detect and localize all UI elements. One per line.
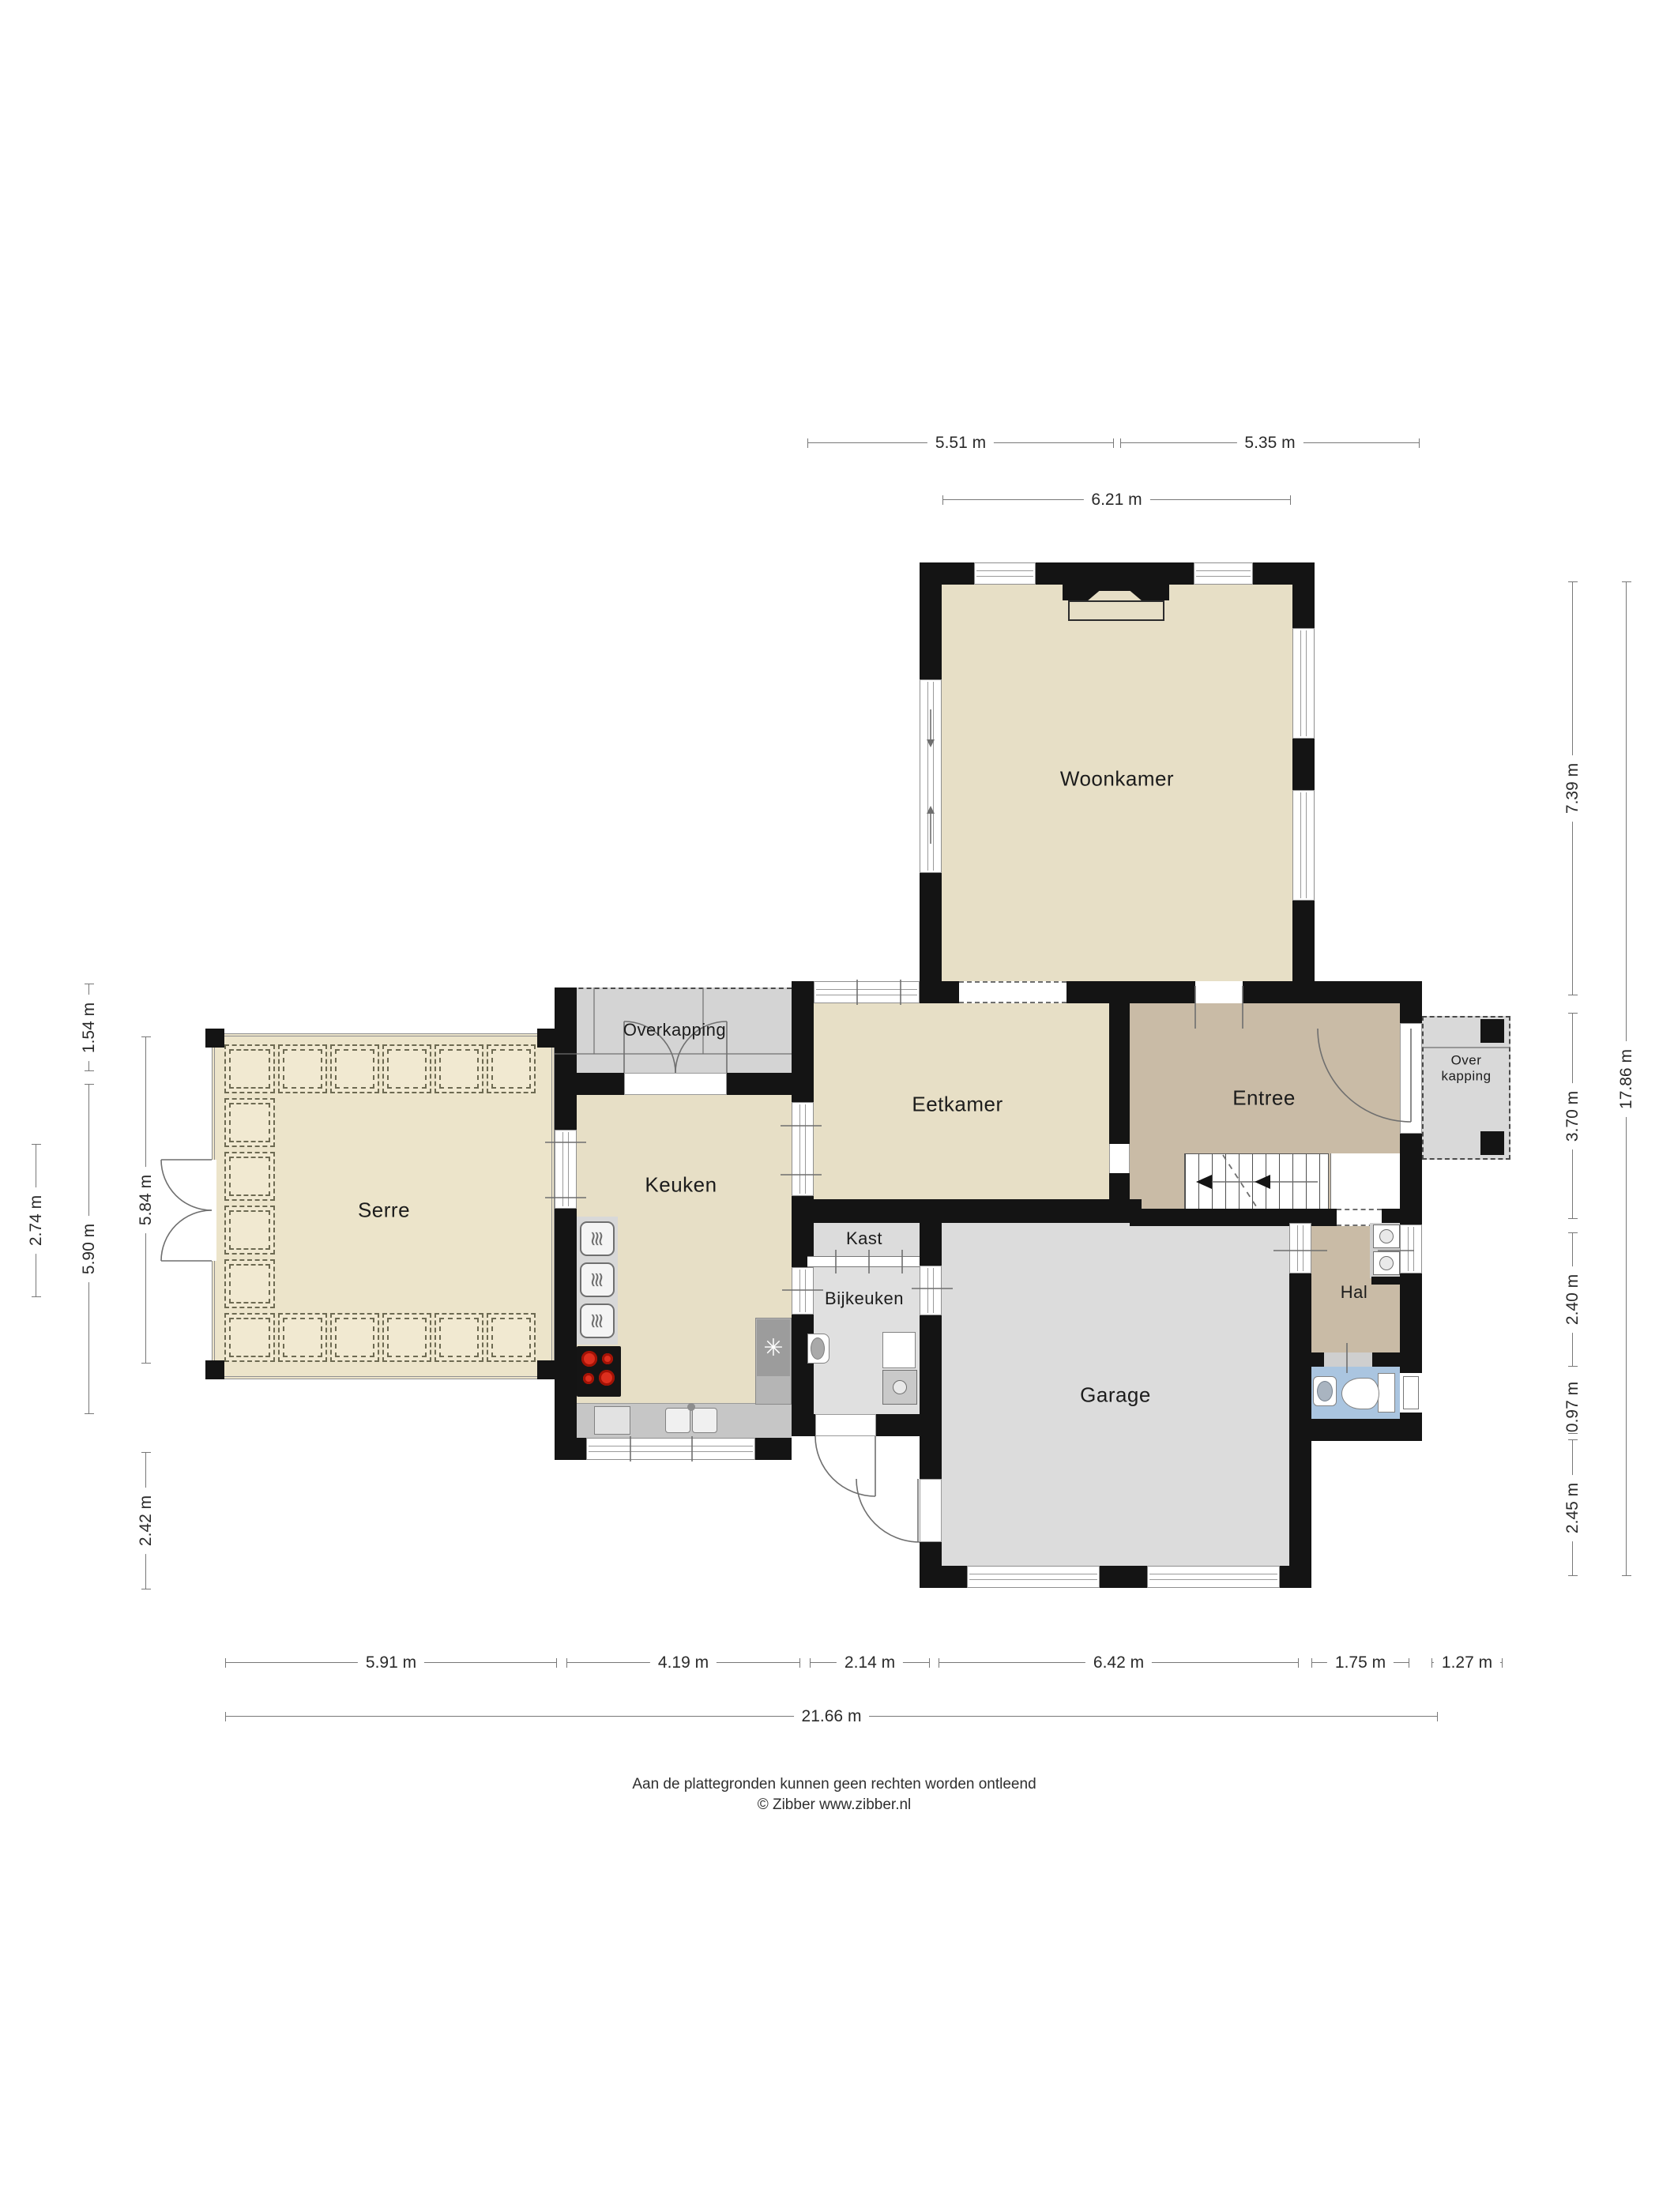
serre-door-arc [161,1160,212,1210]
dimension-left-4: 5.84 m [145,1036,146,1364]
slide-arrowhead [927,739,935,747]
copyright-text: © Zibber www.zibber.nl [518,1795,1150,1815]
bijkeuken-door-arc [815,1436,875,1496]
plan-line-overlay [0,0,1659,2212]
dimension-right-5: 2.45 m [1572,1439,1573,1576]
room-label-woonkamer: Woonkamer [1060,767,1174,792]
dimension-bottom-1: 5.91 m [225,1662,557,1663]
dimension-left-5: 2.42 m [145,1452,146,1589]
dimension-left-2: 5.90 m [88,1084,89,1414]
dimension-right-total: 17.86 m [1626,581,1627,1576]
room-label-kast: Kast [846,1228,882,1249]
dimension-bottom-5: 1.75 m [1311,1662,1409,1663]
stairs-arrowhead [1255,1175,1270,1189]
room-label-eetkamer: Eetkamer [912,1093,1003,1117]
dimension-right-1: 7.39 m [1572,581,1573,995]
footer-disclaimer: Aan de plattegronden kunnen geen rechten… [518,1774,1150,1815]
dimension-left-3: 2.74 m [36,1144,36,1297]
dimension-bottom-4: 6.42 m [939,1662,1299,1663]
room-label-garage: Garage [1080,1383,1151,1408]
slide-arrowhead [927,806,935,814]
room-label-entree: Entree [1232,1086,1296,1111]
disclaimer-text: Aan de plattegronden kunnen geen rechten… [518,1774,1150,1795]
stairs-arrowhead [1196,1175,1212,1189]
room-label-bijkeuken: Bijkeuken [825,1288,904,1309]
serre-door-arc [161,1210,212,1261]
dimension-bottom-3: 2.14 m [810,1662,930,1663]
room-label-keuken: Keuken [645,1173,717,1198]
front-door-arc [1318,1029,1411,1122]
dimension-left-1: 1.54 m [88,984,89,1071]
dimension-bottom-2: 4.19 m [566,1662,800,1663]
dimension-bottom-total: 21.66 m [225,1716,1438,1717]
dimension-bottom-6: 1.27 m [1431,1662,1503,1663]
room-label-overkapping-right: Over kapping [1441,1052,1491,1083]
dimension-top-2: 5.35 m [1120,442,1420,443]
dimension-right-4: 0.97 m [1572,1379,1573,1434]
room-label-hal: Hal [1341,1282,1368,1303]
dimension-top-3: 6.21 m [942,499,1291,500]
dimension-right-2: 3.70 m [1572,1013,1573,1219]
dimension-right-3: 2.40 m [1572,1232,1573,1367]
room-label-serre: Serre [358,1198,410,1223]
dimension-top-1: 5.51 m [807,442,1114,443]
garage-door-arc [856,1479,920,1542]
room-label-overkapping-top: Overkapping [623,1020,726,1040]
overkapping-right-line1: Over [1451,1052,1482,1067]
floor-plan-canvas: ≋ ≋ ≋ ✳ [0,0,1659,2212]
overkapping-right-line2: kapping [1441,1068,1491,1083]
